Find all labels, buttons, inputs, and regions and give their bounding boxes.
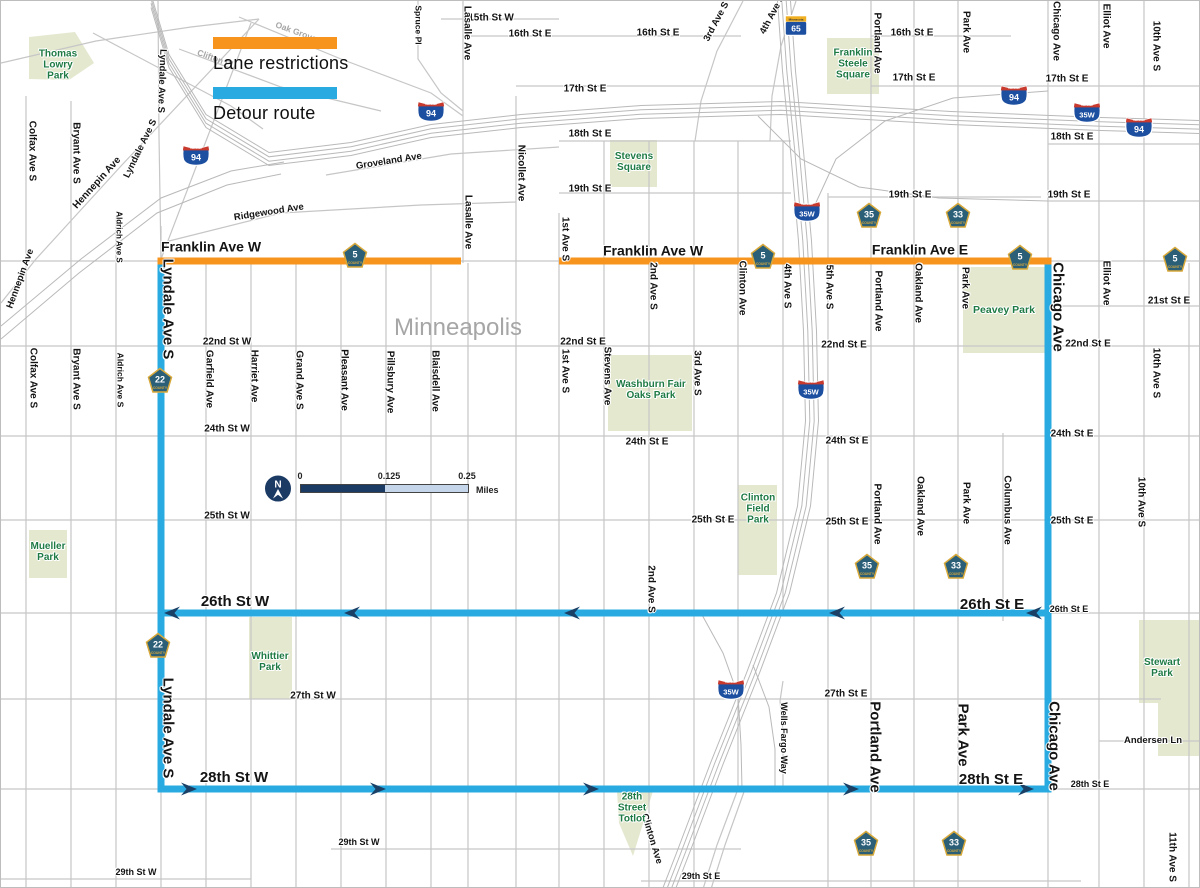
minor-road [93, 33, 263, 129]
minor-road [418, 1, 463, 111]
park-area [29, 32, 94, 80]
map-graphics [1, 1, 1200, 888]
freeway [151, 1, 1200, 153]
freeway [663, 1, 806, 888]
minor-road [179, 49, 381, 111]
park-area [249, 617, 292, 699]
minor-road [239, 17, 463, 116]
minor-road [711, 789, 745, 888]
freeway-ramp [753, 665, 775, 789]
park-area [608, 355, 692, 431]
park-area [738, 485, 777, 575]
freeway-ramp [1, 162, 284, 326]
minor-road [695, 1, 743, 141]
map-canvas: 15th St W16th St E16th St E16th St E17th… [0, 0, 1200, 888]
park-area [1139, 620, 1200, 756]
minor-road [780, 681, 783, 789]
park-area [29, 530, 67, 578]
park-area [617, 791, 653, 856]
park-area [963, 267, 1045, 353]
freeway [151, 1, 1200, 157]
freeway-ramp [701, 613, 742, 789]
minor-road [169, 202, 516, 241]
minor-road [326, 147, 559, 175]
freeway [151, 3, 1200, 161]
freeway-ramp [813, 91, 1048, 209]
park-area [610, 140, 657, 187]
freeway-ramp [1, 174, 281, 339]
